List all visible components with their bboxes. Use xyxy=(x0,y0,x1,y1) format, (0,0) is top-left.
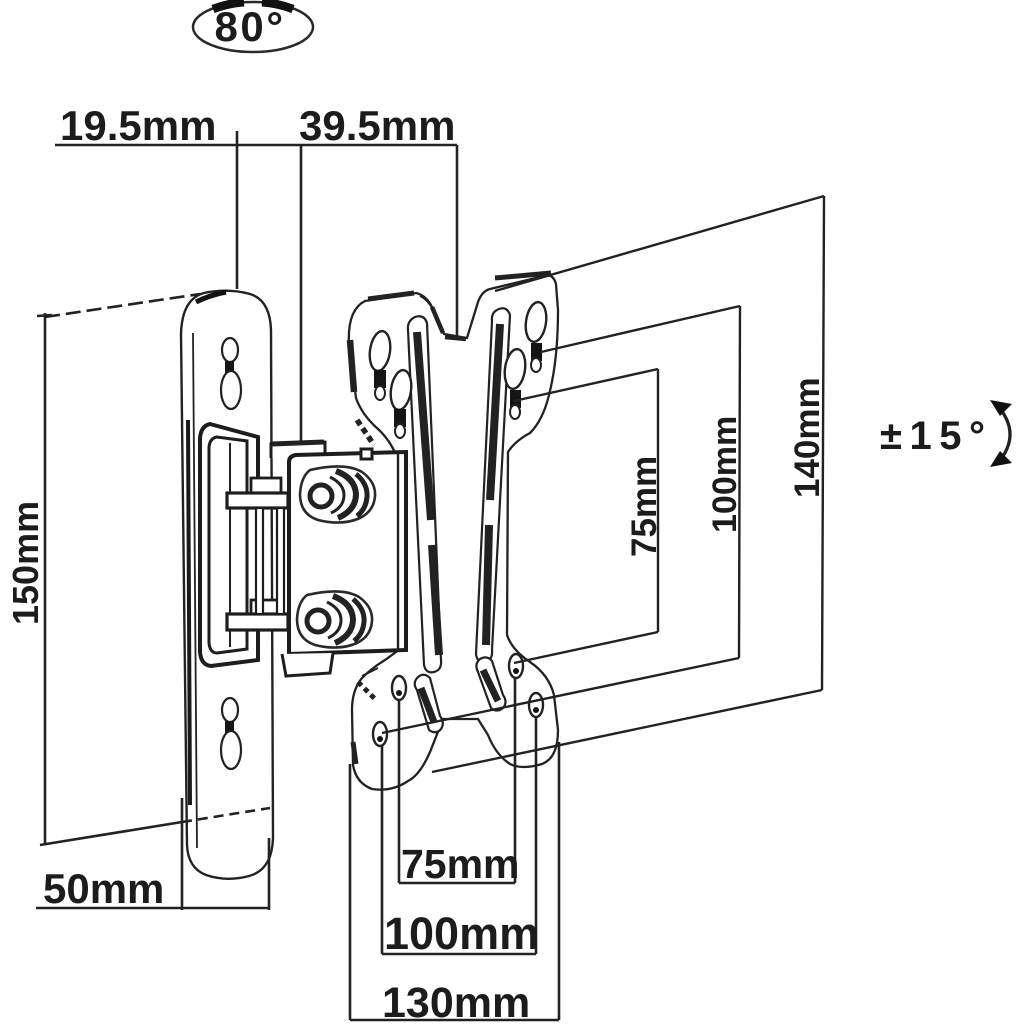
svg-text:100mm: 100mm xyxy=(384,908,539,959)
svg-text:75mm: 75mm xyxy=(625,456,664,557)
svg-text:39.5mm: 39.5mm xyxy=(299,102,455,149)
svg-text:140mm: 140mm xyxy=(788,377,827,498)
svg-text:100mm: 100mm xyxy=(706,416,744,533)
svg-text:19.5mm: 19.5mm xyxy=(60,102,216,149)
svg-text:50mm: 50mm xyxy=(43,865,164,912)
svg-text:75mm: 75mm xyxy=(401,841,520,887)
svg-text:150mm: 150mm xyxy=(5,501,46,625)
svg-text:80°: 80° xyxy=(214,3,285,50)
svg-text:130mm: 130mm xyxy=(382,979,530,1024)
svg-text:±15°: ±15° xyxy=(880,414,992,458)
